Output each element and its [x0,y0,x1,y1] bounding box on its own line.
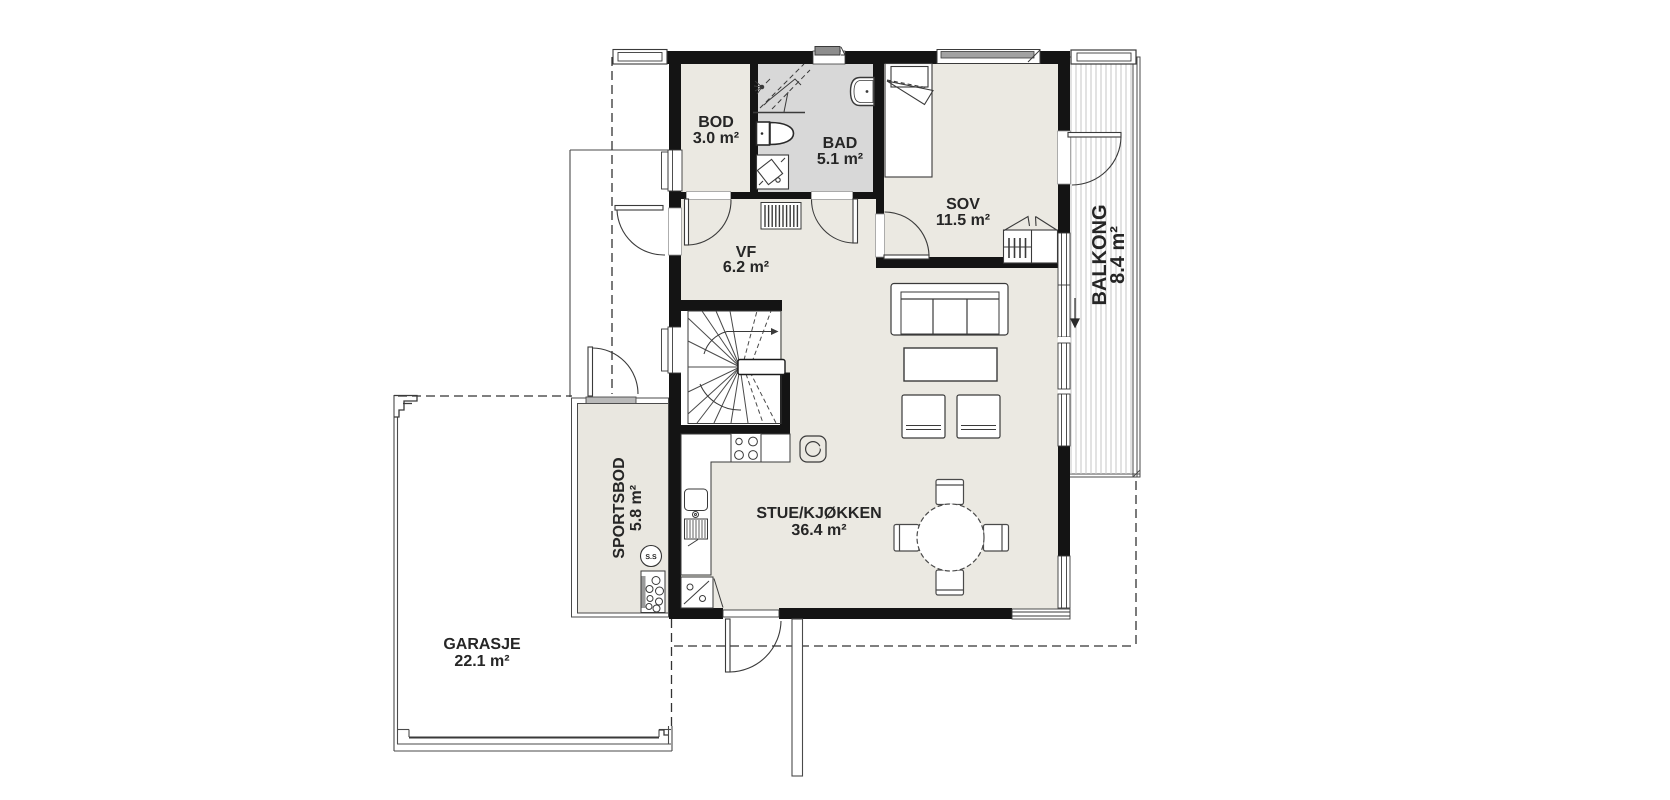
svg-text:3.0 m²: 3.0 m² [693,130,739,147]
svg-text:22.1 m²: 22.1 m² [454,653,509,670]
svg-text:GARASJE: GARASJE [443,636,521,653]
svg-text:11.5 m²: 11.5 m² [936,212,990,229]
svg-text:BOD: BOD [698,114,734,131]
svg-text:SOV: SOV [946,196,980,213]
svg-text:5.1 m²: 5.1 m² [817,151,863,168]
svg-text:6.2 m²: 6.2 m² [723,259,769,276]
svg-text:8.4 m²: 8.4 m² [1107,226,1129,284]
svg-text:STUE/KJØKKEN: STUE/KJØKKEN [756,505,881,522]
svg-text:5.8 m²: 5.8 m² [628,485,645,531]
svg-text:BAD: BAD [823,135,858,152]
svg-text:S.S: S.S [645,554,657,561]
svg-text:36.4 m²: 36.4 m² [791,522,846,539]
svg-text:SPORTSBOD: SPORTSBOD [611,457,628,558]
